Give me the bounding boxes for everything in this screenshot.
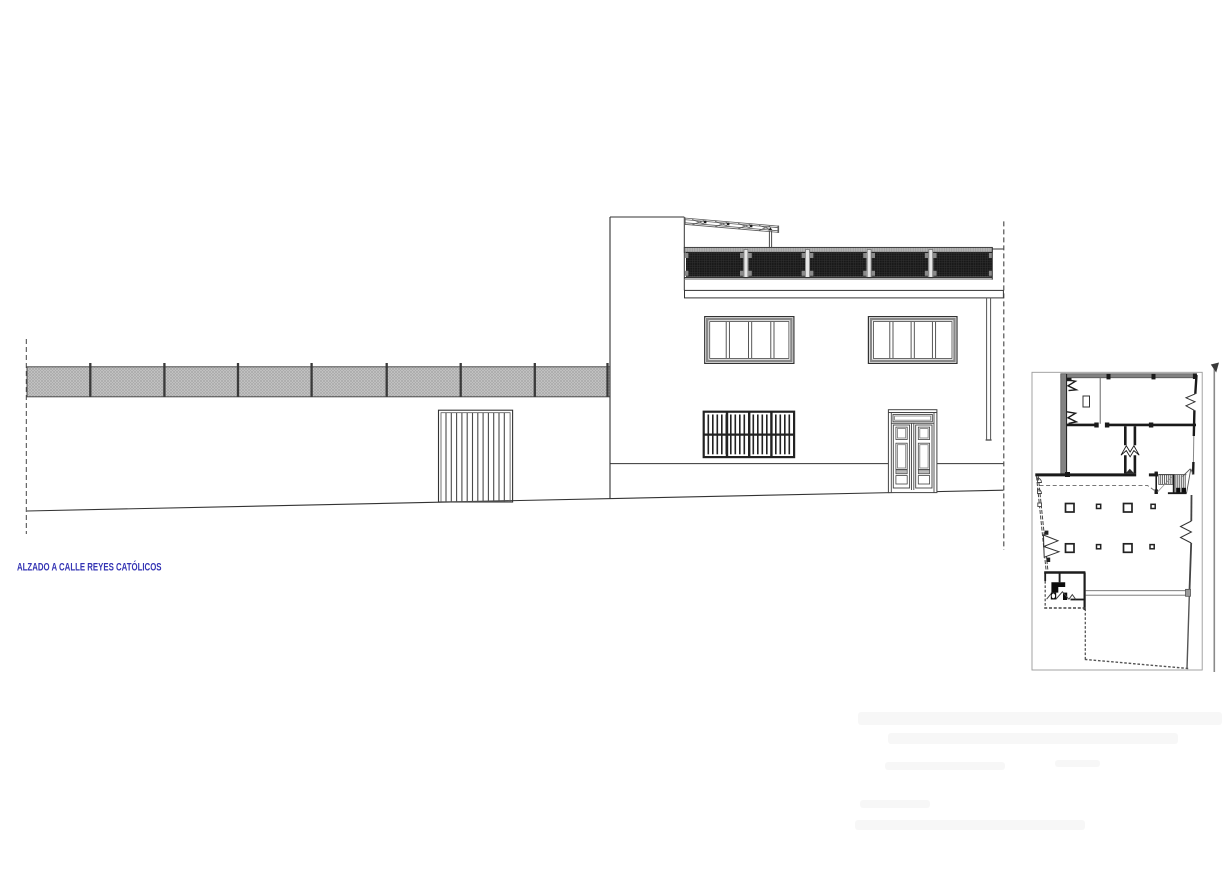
svg-text:ALZADO A CALLE REYES CATÓLICOS: ALZADO A CALLE REYES CATÓLICOS bbox=[17, 561, 162, 574]
